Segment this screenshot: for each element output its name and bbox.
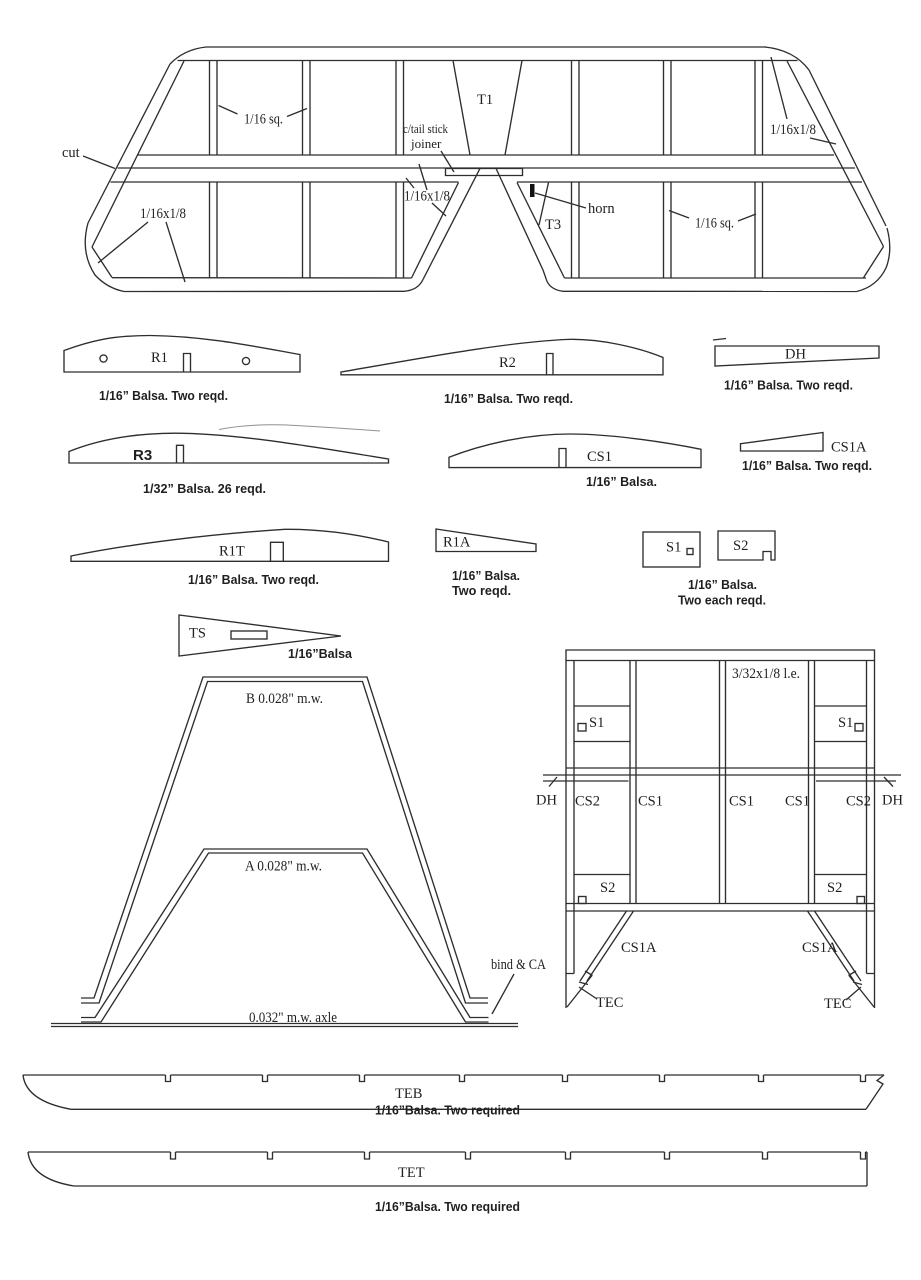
svg-text:Two reqd.: Two reqd. — [452, 583, 511, 598]
svg-text:CS2: CS2 — [575, 794, 600, 810]
svg-text:1/16” Balsa.: 1/16” Balsa. — [452, 568, 520, 583]
svg-text:S2: S2 — [733, 538, 748, 554]
svg-text:R2: R2 — [499, 355, 516, 371]
svg-text:CS1: CS1 — [785, 794, 810, 810]
svg-text:1/16” Balsa. Two reqd.: 1/16” Balsa. Two reqd. — [99, 388, 228, 403]
svg-text:A 0.028" m.w.: A 0.028" m.w. — [245, 859, 322, 875]
svg-text:0.032" m.w. axle: 0.032" m.w. axle — [249, 1010, 337, 1026]
svg-text:1/16” Balsa. Two reqd.: 1/16” Balsa. Two reqd. — [742, 458, 872, 473]
svg-text:1/16x1/8: 1/16x1/8 — [140, 206, 186, 222]
svg-text:1/16 sq.: 1/16 sq. — [695, 216, 734, 232]
svg-text:T1: T1 — [477, 92, 493, 108]
svg-text:1/16” Balsa. Two reqd.: 1/16” Balsa. Two reqd. — [188, 572, 319, 587]
svg-text:DH: DH — [785, 347, 806, 363]
svg-text:1/16”Balsa: 1/16”Balsa — [288, 646, 353, 661]
svg-text:S2: S2 — [827, 880, 842, 896]
svg-text:R1A: R1A — [443, 535, 471, 551]
svg-text:DH: DH — [536, 793, 557, 809]
svg-text:cut: cut — [62, 145, 80, 161]
svg-text:CS1A: CS1A — [621, 940, 657, 956]
svg-text:S1: S1 — [666, 540, 681, 556]
svg-text:Two each reqd.: Two each reqd. — [678, 593, 766, 608]
svg-text:1/16” Balsa. Two reqd.: 1/16” Balsa. Two reqd. — [444, 391, 573, 406]
svg-text:1/16”Balsa. Two required: 1/16”Balsa. Two required — [375, 1103, 520, 1118]
svg-text:R1: R1 — [151, 350, 168, 366]
svg-text:1/32” Balsa. 26 reqd.: 1/32” Balsa. 26 reqd. — [143, 481, 266, 496]
svg-text:1/16x1/8: 1/16x1/8 — [770, 122, 816, 138]
svg-text:S1: S1 — [589, 715, 604, 731]
svg-text:1/16” Balsa. Two reqd.: 1/16” Balsa. Two reqd. — [724, 378, 853, 393]
svg-text:1/16”Balsa. Two required: 1/16”Balsa. Two required — [375, 1199, 520, 1214]
svg-text:horn: horn — [588, 201, 615, 217]
svg-text:TEC: TEC — [596, 995, 623, 1011]
svg-text:TET: TET — [398, 1165, 425, 1181]
svg-text:B 0.028" m.w.: B 0.028" m.w. — [246, 691, 323, 707]
svg-text:joiner: joiner — [410, 136, 442, 151]
svg-text:T3: T3 — [545, 217, 561, 233]
svg-text:c/tail stick: c/tail stick — [403, 121, 448, 136]
svg-text:S1: S1 — [838, 715, 853, 731]
svg-text:S2: S2 — [600, 880, 615, 896]
svg-text:CS1: CS1 — [729, 794, 754, 810]
svg-text:1/16 sq.: 1/16 sq. — [244, 112, 283, 128]
svg-text:DH: DH — [882, 793, 903, 809]
svg-text:1/16” Balsa.: 1/16” Balsa. — [586, 474, 657, 489]
svg-text:CS2: CS2 — [846, 794, 871, 810]
svg-text:R1T: R1T — [219, 544, 245, 560]
svg-text:1/16x1/8: 1/16x1/8 — [404, 189, 450, 205]
svg-text:TS: TS — [189, 626, 206, 642]
svg-text:3/32x1/8 l.e.: 3/32x1/8 l.e. — [732, 666, 800, 682]
svg-text:R3: R3 — [133, 447, 152, 464]
svg-text:TEB: TEB — [395, 1086, 422, 1102]
svg-text:CS1: CS1 — [587, 449, 612, 465]
svg-text:CS1A: CS1A — [831, 440, 867, 456]
svg-text:CS1A: CS1A — [802, 940, 838, 956]
svg-text:1/16” Balsa.: 1/16” Balsa. — [688, 577, 757, 592]
svg-text:CS1: CS1 — [638, 794, 663, 810]
svg-text:bind & CA: bind & CA — [491, 957, 546, 973]
